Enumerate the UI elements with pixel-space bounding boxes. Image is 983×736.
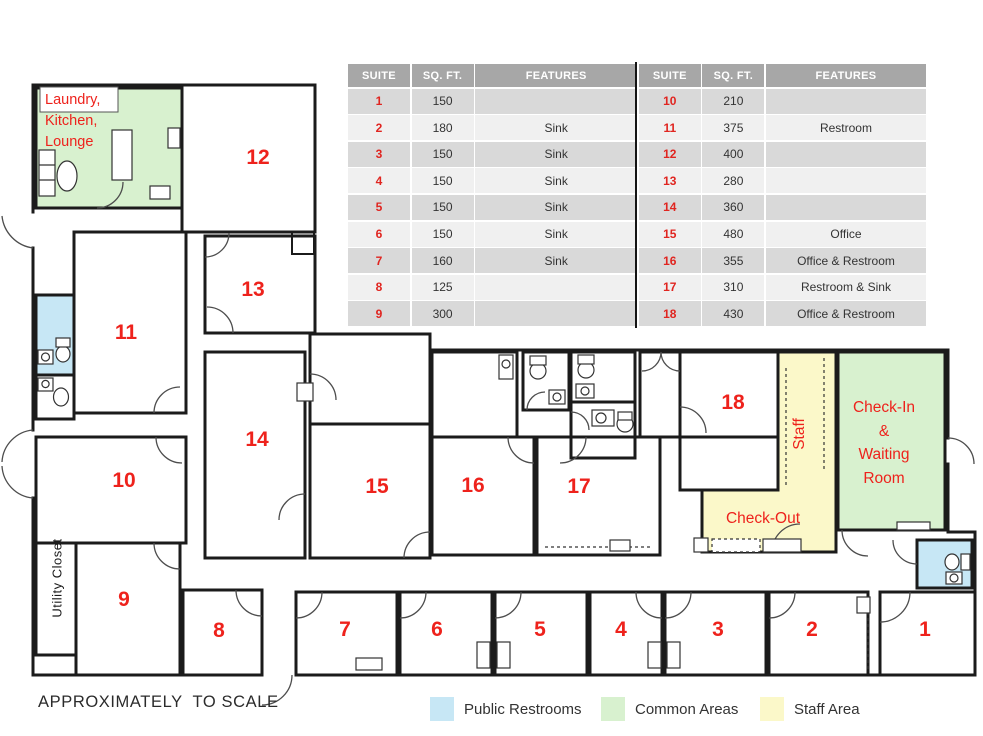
vestibule-room (640, 352, 680, 437)
sink-icon (38, 378, 53, 391)
suite-cell: 3 (348, 142, 410, 167)
floor-plan-canvas: 1 2 3 4 5 6 7 8 9 10 11 12 13 14 15 16 1… (0, 0, 983, 736)
suite-2-room (769, 592, 868, 675)
fixture-box (667, 642, 680, 668)
suite-cell: 10 (639, 89, 701, 114)
staff-label: Staff (791, 418, 809, 450)
outer-wall-right (948, 350, 975, 675)
suite-cell: 2 (348, 115, 410, 140)
toilet-icon (54, 388, 69, 406)
check-in-label: Check-In & Waiting Room (824, 396, 944, 490)
header-features: FEATURES (766, 64, 926, 87)
header-sqft: SQ. FT. (702, 64, 764, 87)
suite-cell: 14 (639, 195, 701, 220)
check-in-line2: & (824, 420, 944, 444)
header-suite: SUITE (639, 64, 701, 87)
sqft-cell: 480 (702, 222, 764, 247)
toilet-icon (530, 356, 546, 379)
suite-10-label: 10 (112, 469, 135, 493)
suite-9-label: 9 (118, 588, 130, 612)
fixture-box (477, 642, 490, 668)
suite-4-label: 4 (615, 618, 627, 642)
suite-5-label: 5 (534, 618, 546, 642)
suite-12-label: 12 (246, 146, 269, 170)
sink-icon (38, 350, 53, 364)
sink-icon (592, 410, 614, 426)
toilet-icon (945, 554, 970, 570)
legend-public-restrooms: Public Restrooms (430, 697, 582, 721)
counter-icon (610, 540, 630, 551)
suite-8-label: 8 (213, 619, 225, 643)
suite-6-label: 6 (431, 618, 443, 642)
features-cell (475, 89, 637, 114)
island-icon (112, 130, 132, 180)
couch-icon (39, 150, 55, 196)
suite-7-label: 7 (339, 618, 351, 642)
scale-note: APPROXIMATELY TO SCALE (38, 693, 279, 712)
utility-closet-label: Utility Closet (50, 538, 65, 617)
header-suite: SUITE (348, 64, 410, 87)
public-restrooms-swatch (430, 697, 454, 721)
suite-16-label: 16 (461, 474, 484, 498)
sqft-cell: 125 (412, 275, 474, 300)
features-cell: Restroom & Sink (766, 275, 926, 300)
features-cell (766, 195, 926, 220)
suite-3-label: 3 (712, 618, 724, 642)
counter-icon (712, 539, 760, 552)
fixture-box (356, 658, 382, 670)
sqft-cell: 180 (412, 115, 474, 140)
features-cell (475, 275, 637, 300)
common-areas-swatch (601, 697, 625, 721)
suite-cell: 8 (348, 275, 410, 300)
appliance-icon (150, 186, 170, 199)
legend-staff-area: Staff Area (760, 697, 860, 721)
sink-icon (499, 355, 513, 379)
legend-label: Common Areas (635, 701, 738, 718)
suite-cell: 9 (348, 301, 410, 326)
appliance-icon (168, 128, 180, 148)
suite-cell: 18 (639, 301, 701, 326)
suite-14-room (205, 352, 305, 558)
suite-18-label: 18 (721, 391, 744, 415)
suite-cell: 1 (348, 89, 410, 114)
features-cell: Sink (475, 195, 637, 220)
suite-17-room (537, 437, 660, 555)
sqft-cell: 150 (412, 142, 474, 167)
sqft-cell: 375 (702, 115, 764, 140)
features-cell: Office (766, 222, 926, 247)
staff-area-swatch (760, 697, 784, 721)
suite-cell: 13 (639, 168, 701, 193)
check-in-line1: Check-In (824, 396, 944, 420)
features-cell: Office & Restroom (766, 248, 926, 273)
inner-room (680, 437, 778, 490)
table-divider (635, 62, 638, 328)
legend-common-areas: Common Areas (601, 697, 738, 721)
suite-1-label: 1 (919, 618, 931, 642)
table-icon (57, 161, 77, 191)
common-room-line2: Kitchen, (45, 111, 100, 132)
common-room-line1: Laundry, (45, 90, 100, 111)
suite-10-room (36, 437, 186, 543)
suite-cell: 6 (348, 222, 410, 247)
suite-cell: 7 (348, 248, 410, 273)
suite-table: SUITE SQ. FT. FEATURES SUITE SQ. FT. FEA… (348, 64, 920, 326)
suite-2-label: 2 (806, 618, 818, 642)
features-cell (766, 142, 926, 167)
toilet-icon (617, 412, 633, 432)
wall-box (297, 383, 313, 401)
sqft-cell: 360 (702, 195, 764, 220)
check-in-line3: Waiting (824, 443, 944, 467)
check-in-line4: Room (824, 467, 944, 491)
legend-label: Staff Area (794, 701, 860, 718)
sqft-cell: 150 (412, 89, 474, 114)
features-cell: Sink (475, 115, 637, 140)
suite-17-label: 17 (567, 475, 590, 499)
suite-15-upper-room (310, 334, 430, 424)
suite-cell: 11 (639, 115, 701, 140)
sink-icon (576, 384, 594, 398)
sqft-cell: 400 (702, 142, 764, 167)
features-cell: Restroom (766, 115, 926, 140)
sink-icon (549, 390, 565, 404)
suite-cell: 16 (639, 248, 701, 273)
sqft-cell: 150 (412, 168, 474, 193)
features-cell (766, 89, 926, 114)
features-cell: Sink (475, 248, 637, 273)
legend-label: Public Restrooms (464, 701, 582, 718)
sqft-cell: 280 (702, 168, 764, 193)
suite-cell: 5 (348, 195, 410, 220)
features-cell: Sink (475, 168, 637, 193)
common-room-line3: Lounge (45, 132, 100, 153)
sqft-cell: 150 (412, 222, 474, 247)
sqft-cell: 310 (702, 275, 764, 300)
suite-cell: 4 (348, 168, 410, 193)
fixture-box (648, 642, 661, 668)
sqft-cell: 300 (412, 301, 474, 326)
suite-15-label: 15 (365, 475, 388, 499)
sink-icon (946, 572, 962, 584)
features-cell: Sink (475, 142, 637, 167)
header-features: FEATURES (475, 64, 637, 87)
suite-cell: 12 (639, 142, 701, 167)
bench-icon (897, 522, 930, 530)
sqft-cell: 210 (702, 89, 764, 114)
fixture-box (497, 642, 510, 668)
sqft-cell: 355 (702, 248, 764, 273)
toilet-icon (56, 338, 70, 362)
suite-cell: 17 (639, 275, 701, 300)
features-cell: Office & Restroom (766, 301, 926, 326)
suite-13-label: 13 (241, 278, 264, 302)
header-sqft: SQ. FT. (412, 64, 474, 87)
counter-icon (694, 538, 708, 552)
features-cell: Sink (475, 222, 637, 247)
suite-11-label: 11 (115, 321, 137, 345)
suite-14-label: 14 (245, 428, 268, 452)
counter-icon (763, 539, 801, 552)
common-room-label: Laundry, Kitchen, Lounge (45, 90, 100, 153)
sqft-cell: 430 (702, 301, 764, 326)
features-cell (475, 301, 637, 326)
check-out-label: Check-Out (726, 510, 800, 528)
features-cell (766, 168, 926, 193)
toilet-icon (578, 355, 594, 378)
sqft-cell: 150 (412, 195, 474, 220)
sqft-cell: 160 (412, 248, 474, 273)
fixture-box (857, 597, 870, 613)
suite-cell: 15 (639, 222, 701, 247)
